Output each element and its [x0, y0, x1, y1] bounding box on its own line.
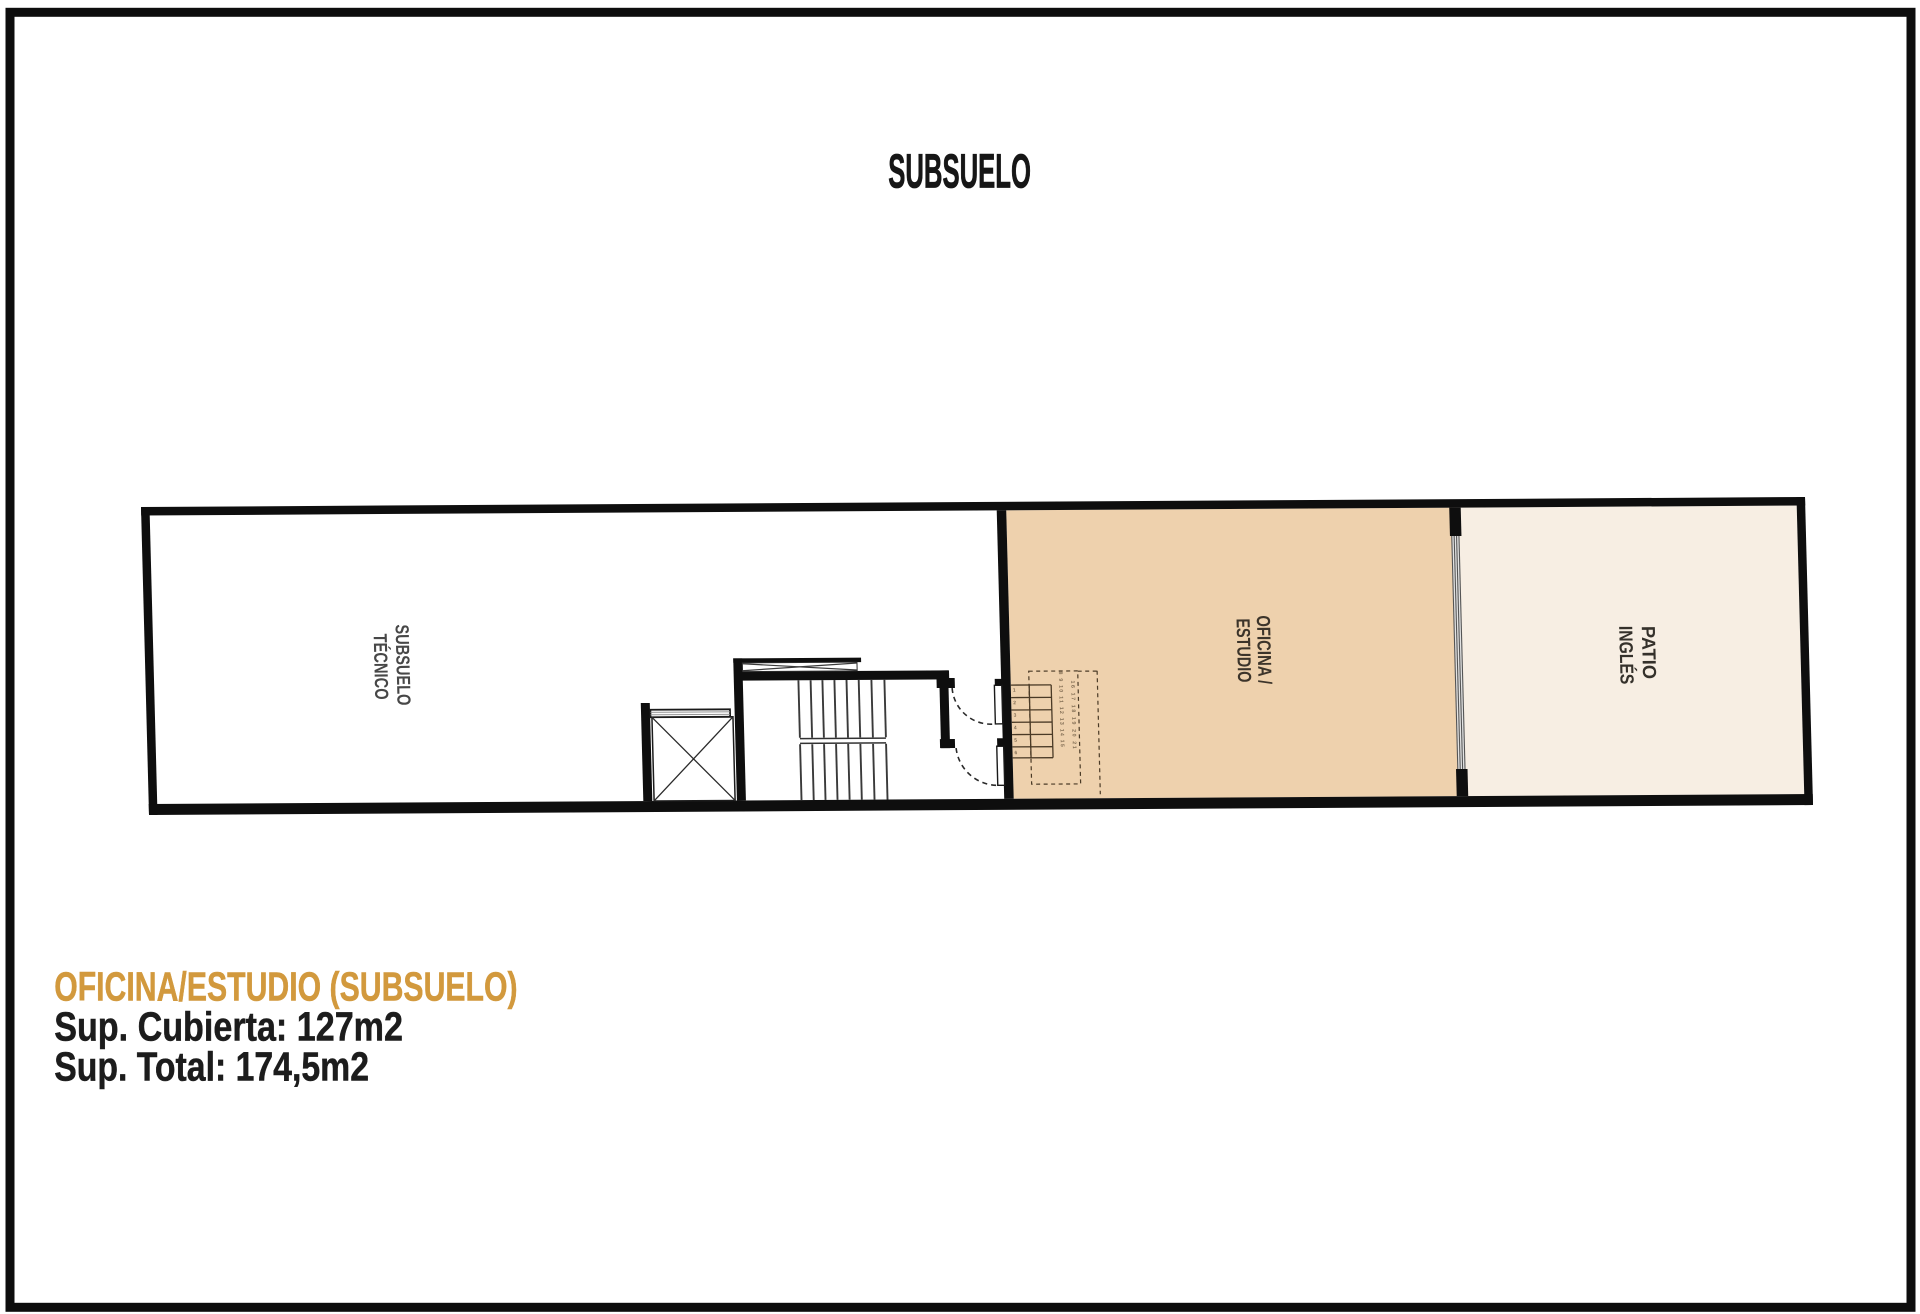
svg-text:3: 3 [1013, 713, 1016, 719]
svg-text:INGLÉS: INGLÉS [1614, 626, 1638, 685]
svg-text:OFICINA /: OFICINA / [1252, 615, 1275, 685]
svg-text:6: 6 [1014, 750, 1017, 756]
svg-text:ESTUDIO: ESTUDIO [1231, 618, 1254, 682]
svg-text:PATIO: PATIO [1637, 626, 1659, 679]
svg-text:5: 5 [1014, 738, 1017, 744]
svg-text:4: 4 [1014, 725, 1017, 731]
svg-text:1: 1 [1013, 688, 1016, 694]
svg-text:Sup. Total: 174,5m2: Sup. Total: 174,5m2 [54, 1044, 369, 1090]
svg-text:SUBSUELO: SUBSUELO [390, 624, 413, 705]
svg-text:SUBSUELO: SUBSUELO [888, 146, 1031, 199]
svg-text:Sup. Cubierta: 127m2: Sup. Cubierta: 127m2 [54, 1003, 403, 1049]
svg-text:TÉCNICO: TÉCNICO [369, 634, 393, 700]
svg-text:2: 2 [1013, 700, 1016, 706]
